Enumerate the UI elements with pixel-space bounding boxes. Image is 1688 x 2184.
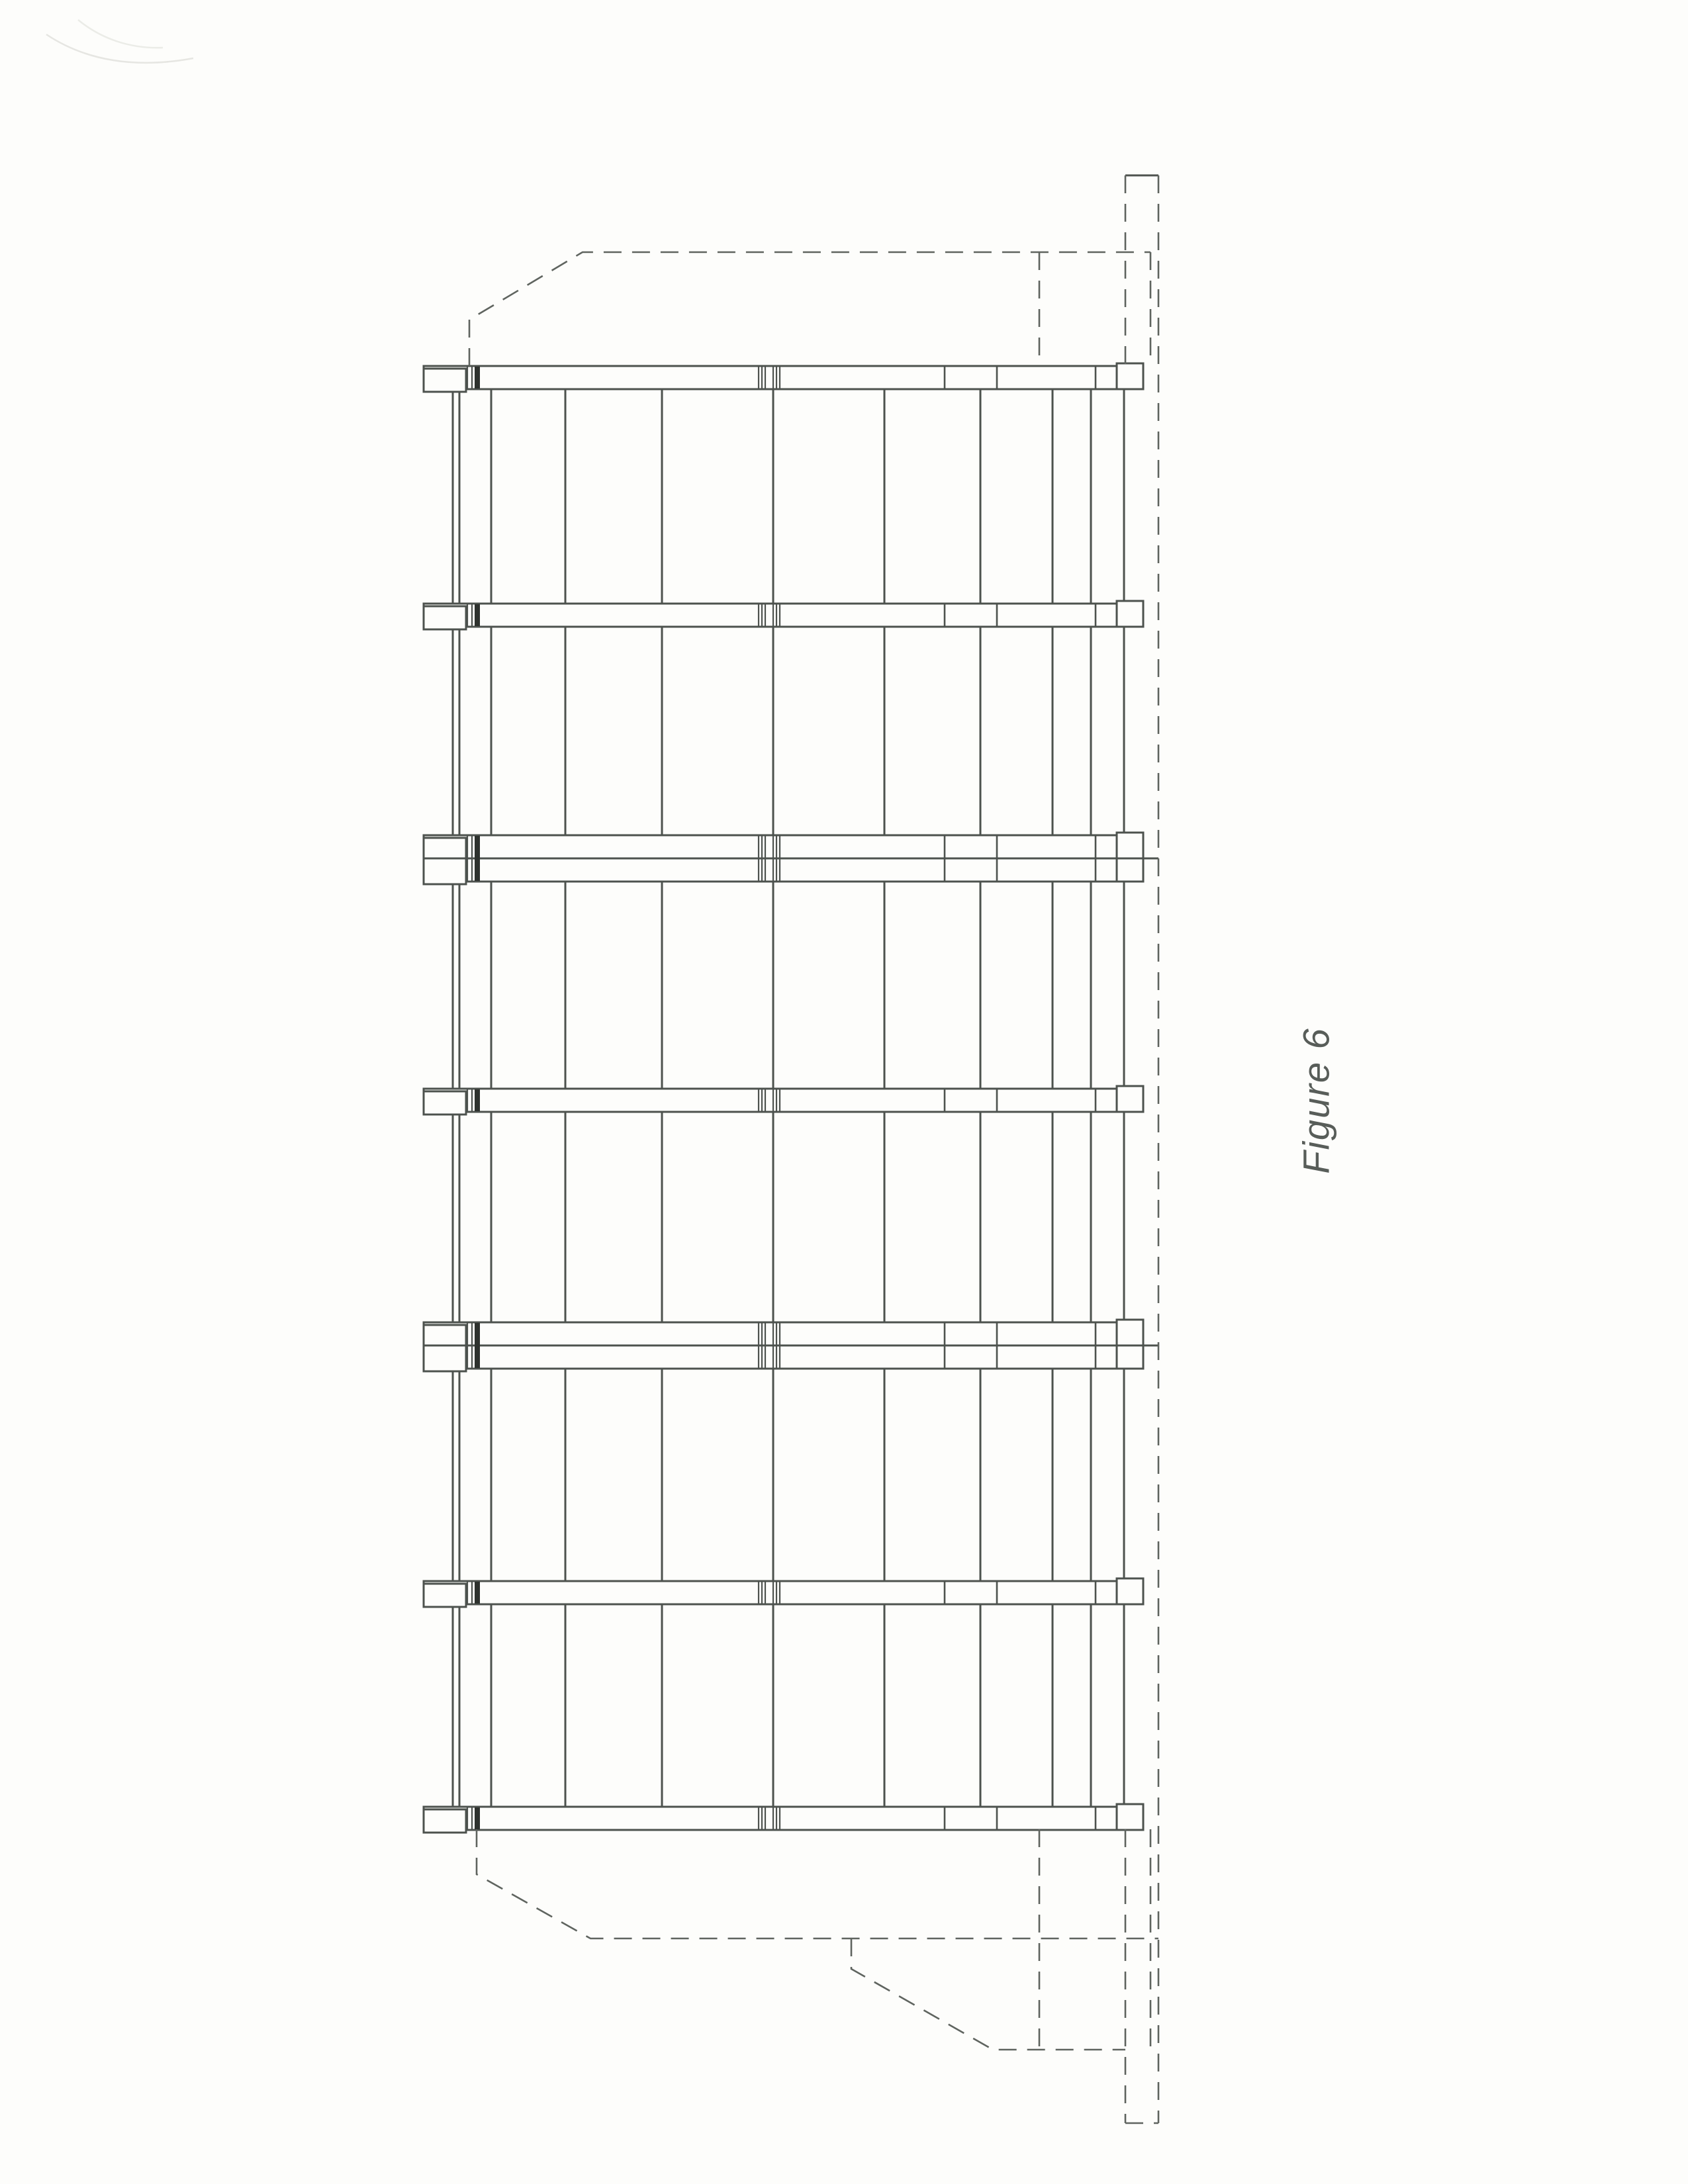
figure-label: Figure 6 — [1295, 1027, 1338, 1173]
scan-smudge-marks — [46, 20, 193, 63]
cross-rails — [424, 363, 1158, 1833]
patent-figure-page: Figure 6 — [0, 0, 1688, 2184]
technical-drawing — [0, 0, 1688, 2184]
phantom-outline-dashed — [469, 175, 1158, 2123]
